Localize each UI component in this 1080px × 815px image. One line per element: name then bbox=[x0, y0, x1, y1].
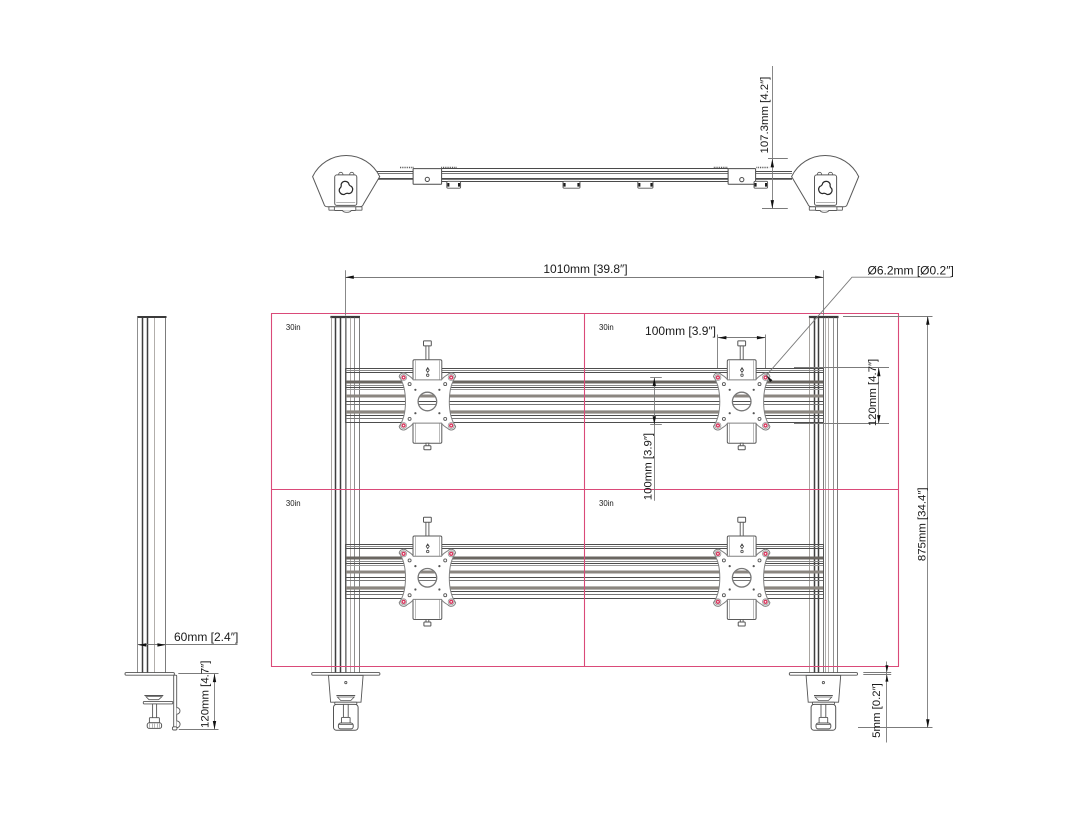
svg-text:120mm [4.7″]: 120mm [4.7″] bbox=[200, 661, 212, 728]
svg-text:120mm [4.7″]: 120mm [4.7″] bbox=[867, 359, 879, 426]
svg-text:100mm [3.9″]: 100mm [3.9″] bbox=[645, 324, 716, 338]
svg-text:107.3mm [4.2″]: 107.3mm [4.2″] bbox=[759, 77, 771, 154]
svg-text:30in: 30in bbox=[599, 499, 614, 508]
svg-text:30in: 30in bbox=[286, 499, 301, 508]
svg-text:30in: 30in bbox=[286, 323, 301, 332]
svg-text:100mm [3.9″]: 100mm [3.9″] bbox=[642, 433, 654, 500]
svg-text:875mm [34.4″]: 875mm [34.4″] bbox=[916, 487, 928, 561]
svg-text:Ø6.2mm [Ø0.2″]: Ø6.2mm [Ø0.2″] bbox=[868, 264, 954, 278]
svg-text:60mm [2.4″]: 60mm [2.4″] bbox=[174, 630, 238, 644]
svg-text:1010mm [39.8″]: 1010mm [39.8″] bbox=[543, 262, 627, 276]
svg-text:30in: 30in bbox=[599, 323, 614, 332]
svg-text:5mm [0.2″]: 5mm [0.2″] bbox=[871, 683, 883, 738]
